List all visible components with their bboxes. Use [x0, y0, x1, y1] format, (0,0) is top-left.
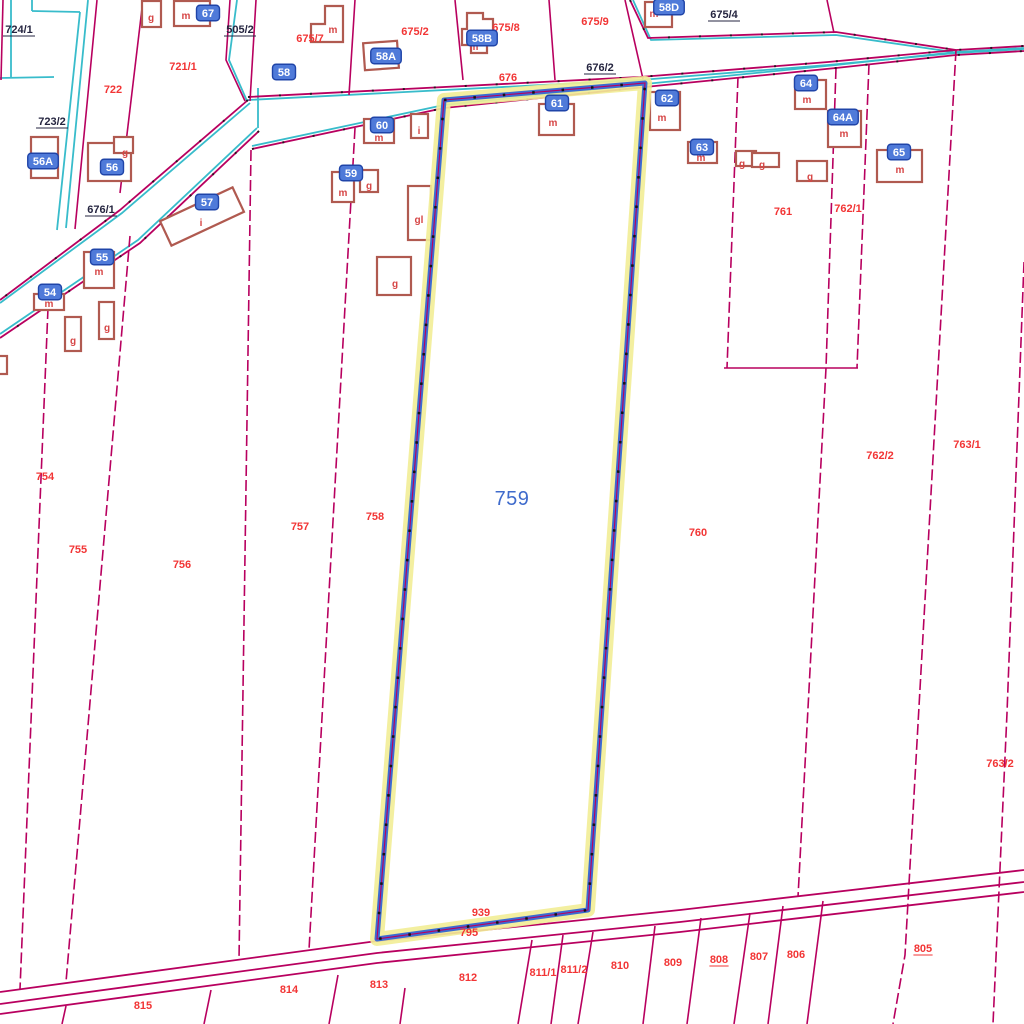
parcel-label[interactable]: 675/9 [581, 16, 609, 28]
parcel-label[interactable]: 806 [787, 949, 805, 961]
parcel-label[interactable]: 809 [664, 957, 682, 969]
parcel-label[interactable]: 755 [69, 544, 87, 556]
address-number-text: 62 [661, 93, 673, 105]
address-number-text: 58B [472, 33, 492, 45]
parcel-label[interactable]: 675/2 [401, 26, 429, 38]
building-usage-letter: g [366, 181, 372, 192]
building-usage-letter: g [759, 160, 765, 171]
building-usage-letter: m [182, 11, 191, 22]
parcel-label[interactable]: 762/2 [866, 450, 894, 462]
building-usage-letter: m [45, 299, 54, 310]
building-usage-letter: g [122, 148, 128, 159]
parcel-label[interactable]: 760 [689, 527, 707, 539]
parcel-label[interactable]: 795 [460, 927, 478, 939]
building-usage-letter: g [739, 159, 745, 170]
address-number-text: 65 [893, 147, 905, 159]
parcel-label[interactable]: 763/1 [953, 439, 981, 451]
address-number-text: 64 [800, 78, 813, 90]
building-usage-letter: i [200, 218, 203, 229]
building-usage-letter: g [148, 13, 154, 24]
parcel-label[interactable]: 761 [774, 206, 792, 218]
parcel-label[interactable]: 676 [499, 72, 517, 84]
building-usage-letter: m [339, 188, 348, 199]
map-viewport[interactable]: 939gmmmmmmmmmmgggmgmiglggimmgg675/7675/2… [0, 0, 1024, 1024]
parcel-label[interactable]: 721/1 [169, 61, 197, 73]
parcel-label[interactable]: 815 [134, 1000, 152, 1012]
building-usage-letter: g [392, 279, 398, 290]
road-parcel-label[interactable]: 723/2 [38, 116, 66, 128]
road-parcel-label[interactable]: 675/4 [710, 9, 738, 21]
building-usage-letter: m [95, 267, 104, 278]
building-usage-letter: m [549, 118, 558, 129]
address-number-text: 57 [201, 197, 213, 209]
address-number-text: 56A [33, 156, 53, 168]
parcel-label[interactable]: 757 [291, 521, 309, 533]
parcel-label[interactable]: 811/2 [561, 964, 588, 976]
address-number-text: 56 [106, 162, 118, 174]
parcel-label[interactable]: 722 [104, 84, 122, 96]
address-number-text: 59 [345, 168, 357, 180]
parcel-label[interactable]: 675/7 [296, 33, 324, 45]
parcel-label[interactable]: 763/2 [986, 758, 1014, 770]
building-usage-letter: g [807, 172, 813, 183]
road-parcel-label[interactable]: 724/1 [5, 24, 33, 36]
address-number-text: 55 [96, 252, 108, 264]
address-number-text: 54 [44, 287, 57, 299]
address-number-text: 60 [376, 120, 388, 132]
cadastral-map-canvas[interactable]: 939gmmmmmmmmmmgggmgmiglggimmgg675/7675/2… [0, 0, 1024, 1024]
building-usage-letter: g [70, 336, 76, 347]
map-background [0, 0, 1024, 1024]
building [0, 356, 7, 374]
parcel-label[interactable]: 754 [36, 471, 55, 483]
parcel-label[interactable]: 762/1 [834, 203, 862, 215]
address-number-text: 61 [551, 98, 563, 110]
address-number-text: 58 [278, 67, 290, 79]
road-parcel-label[interactable]: 676/2 [586, 62, 614, 74]
road-parcel-label[interactable]: 505/2 [226, 24, 254, 36]
parcel-label[interactable]: 811/1 [530, 967, 557, 979]
parcel-label[interactable]: 812 [459, 972, 477, 984]
parcel-label[interactable]: 805 [914, 943, 932, 955]
building-usage-letter: m [803, 95, 812, 106]
building-usage-letter: m [658, 113, 667, 124]
parcel-label[interactable]: 807 [750, 951, 768, 963]
utility-cyan-line [0, 77, 54, 78]
building-usage-letter: gl [415, 215, 424, 226]
address-number-text: 64A [833, 112, 853, 124]
building-usage-letter: m [896, 165, 905, 176]
building-usage-letter: i [418, 126, 421, 137]
parcel-label[interactable]: 810 [611, 960, 629, 972]
address-number-text: 67 [202, 8, 214, 20]
parcel-label[interactable]: 813 [370, 979, 388, 991]
address-number-text: 63 [696, 142, 708, 154]
building-usage-letter: m [840, 129, 849, 140]
road-parcel-label[interactable]: 676/1 [87, 204, 115, 216]
parcel-label[interactable]: 758 [366, 511, 384, 523]
building-usage-letter: g [104, 323, 110, 334]
building-usage-letter: m [329, 25, 338, 36]
building [752, 153, 779, 167]
parcel-label[interactable]: 808 [710, 954, 728, 966]
building-usage-letter: m [375, 133, 384, 144]
parcel-label[interactable]: 756 [173, 559, 191, 571]
address-number-text: 58D [659, 2, 679, 14]
parcel-label[interactable]: 814 [280, 984, 299, 996]
utility-cyan-line [32, 11, 80, 12]
address-number-text: 58A [376, 51, 396, 63]
selected-parcel-number[interactable]: 759 [495, 488, 530, 510]
